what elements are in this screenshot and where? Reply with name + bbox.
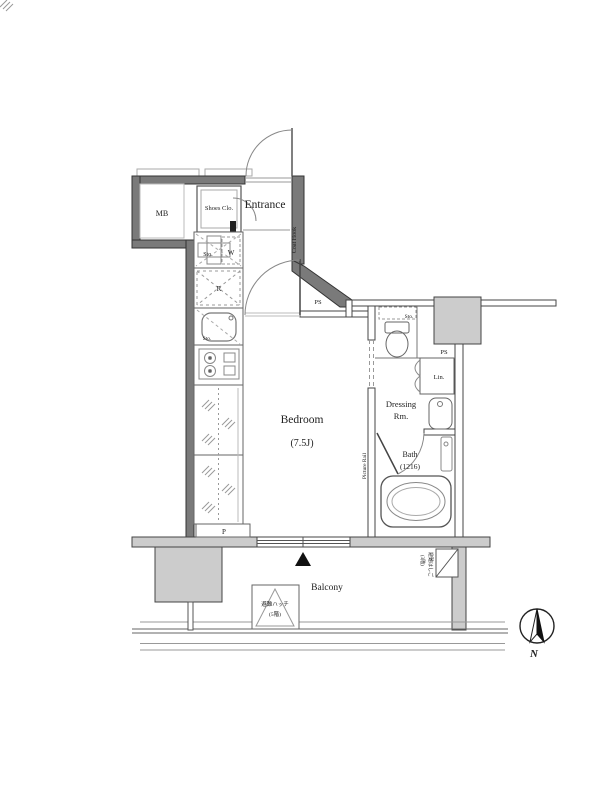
wall-bedroom-north — [300, 311, 372, 317]
storage-toilet-label: Sto. — [405, 314, 414, 320]
entrance-label: Entrance — [245, 199, 286, 211]
hatch-label-line2: (5階) — [269, 610, 281, 618]
wall-partition-upper — [368, 306, 375, 340]
storage-hall-label: Sto. — [203, 252, 213, 258]
north-label: N — [529, 648, 539, 660]
wall-top-left — [132, 176, 245, 184]
balcony-post-west — [188, 602, 193, 630]
bath-size-label: (1216) — [400, 462, 420, 471]
bedroom-window — [257, 537, 350, 547]
ladder-label-line1: 避難はしご — [427, 552, 434, 577]
linen-label: Lin. — [434, 374, 445, 381]
shoes-closet-label: Shoes Clo. — [205, 205, 234, 212]
wall-west — [186, 240, 194, 540]
mb-label: MB — [156, 209, 168, 218]
pipe-label: P — [222, 528, 226, 536]
wall-east — [455, 344, 463, 537]
background — [0, 0, 600, 800]
ladder-label-line2: (3階) — [419, 555, 426, 566]
fridge-label: R — [217, 285, 222, 293]
floor-plan-drawing: MB Shoes Clo. Entrance Coat Hook Sto. W … — [0, 0, 600, 800]
picture-rail-label: Picture Rail — [362, 452, 368, 479]
bath-label: Bath — [402, 450, 417, 459]
fixture-strip — [194, 232, 243, 524]
wall-partition-lower — [368, 388, 375, 537]
column-northeast — [434, 297, 481, 344]
coat-hook-label: Coat Hook — [292, 227, 298, 253]
wall-mb-west — [132, 176, 140, 248]
wall-northeast-a — [352, 300, 434, 306]
floor-plan-page: MB Shoes Clo. Entrance Coat Hook Sto. W … — [0, 0, 600, 800]
hatch-label-line1: 避難ハッチ — [261, 600, 289, 608]
storage-kitchen-label: Sto. — [203, 336, 212, 342]
column-southwest — [155, 547, 222, 602]
dressing-label-line2: Rm. — [394, 411, 408, 421]
washer-label: W — [228, 249, 235, 257]
bedroom-size-label: (7.5J) — [290, 438, 313, 449]
dressing-label-line1: Dressing — [386, 399, 417, 409]
bedroom-label: Bedroom — [281, 414, 324, 426]
wall-mb-south — [132, 240, 192, 248]
ps-upper-label: PS — [314, 299, 322, 306]
ps-east-label: PS — [440, 349, 448, 356]
wall-bath-north — [424, 429, 455, 435]
balcony-label: Balcony — [311, 583, 343, 593]
wall-northeast-b — [481, 300, 556, 306]
wall-nook-connector — [346, 300, 352, 317]
evacuation-ladder — [436, 549, 458, 577]
